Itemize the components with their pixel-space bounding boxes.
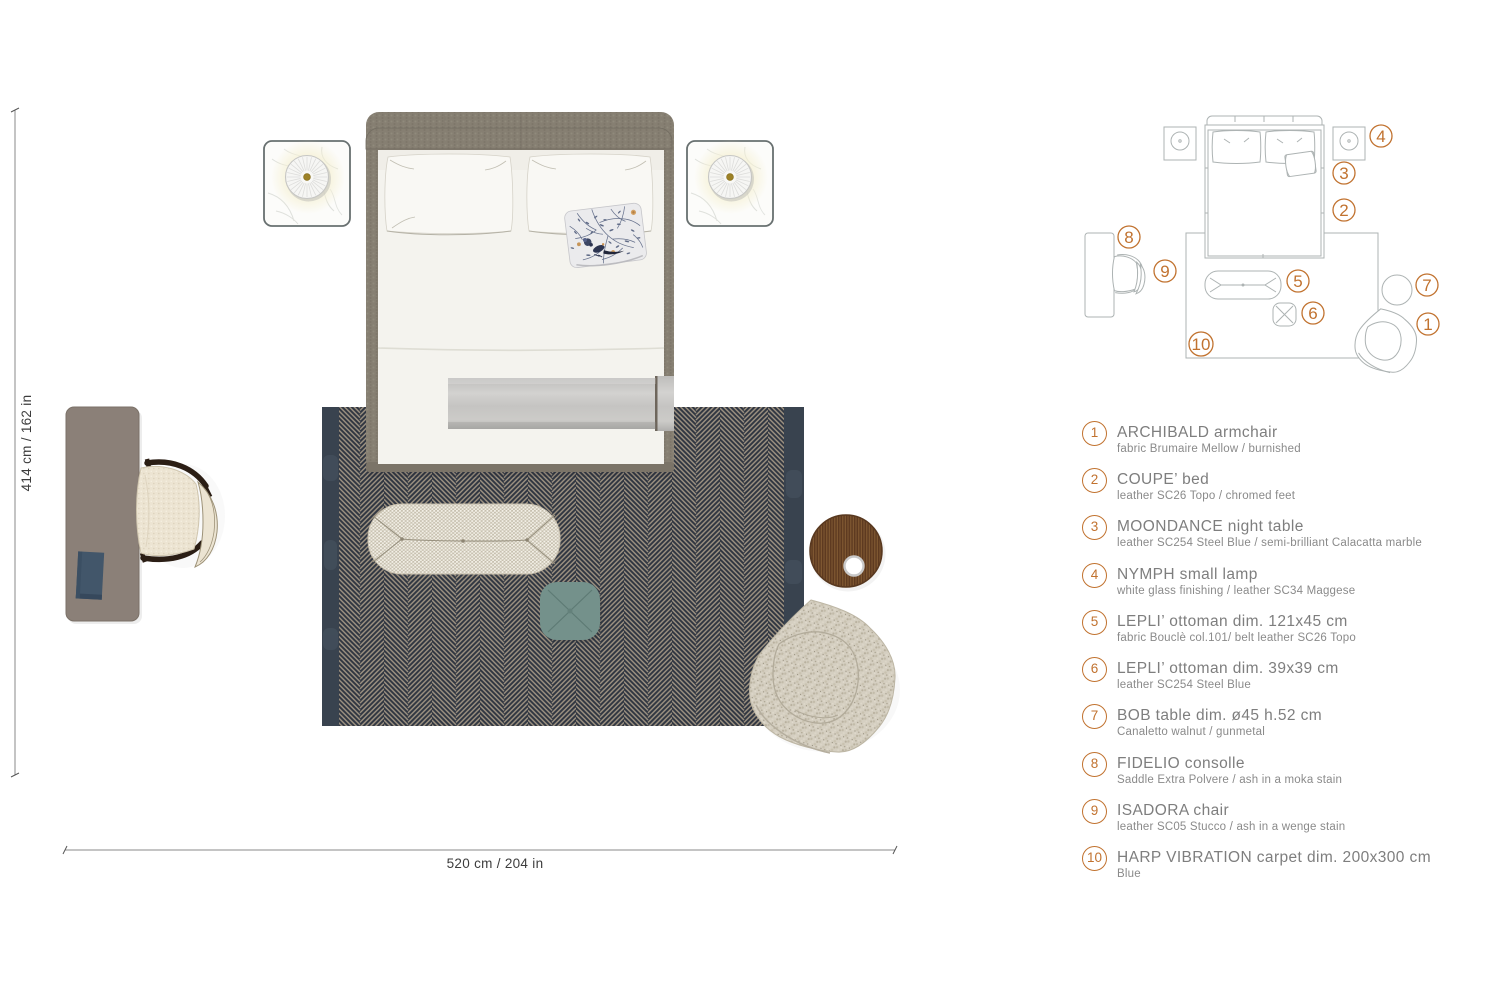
svg-text:10: 10 xyxy=(1192,335,1211,354)
svg-text:6: 6 xyxy=(1308,304,1317,323)
svg-text:2: 2 xyxy=(1339,201,1348,220)
svg-text:7: 7 xyxy=(1422,276,1431,295)
svg-text:1: 1 xyxy=(1423,315,1432,334)
svg-text:5: 5 xyxy=(1293,272,1302,291)
svg-text:8: 8 xyxy=(1124,228,1133,247)
svg-text:4: 4 xyxy=(1376,127,1385,146)
svg-text:3: 3 xyxy=(1339,164,1348,183)
svg-text:9: 9 xyxy=(1160,262,1169,281)
